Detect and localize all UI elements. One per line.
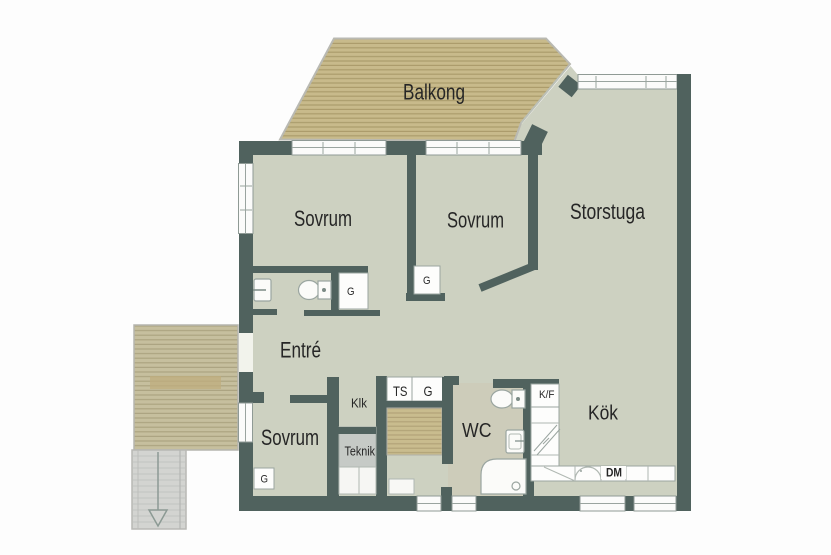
svg-text:G: G — [261, 474, 269, 486]
svg-text:G: G — [424, 383, 433, 399]
svg-text:TS: TS — [393, 383, 408, 399]
svg-text:Entré: Entré — [280, 338, 321, 363]
svg-text:Kök: Kök — [588, 402, 619, 425]
svg-text:WC: WC — [462, 420, 492, 442]
svg-text:Klk: Klk — [351, 396, 367, 411]
svg-text:Sovrum: Sovrum — [294, 206, 352, 231]
svg-text:Storstuga: Storstuga — [570, 199, 645, 224]
svg-text:Teknik: Teknik — [345, 445, 376, 459]
svg-text:G: G — [423, 275, 431, 287]
svg-text:Sovrum: Sovrum — [261, 425, 319, 450]
svg-text:K/F: K/F — [539, 389, 555, 401]
svg-text:DM: DM — [606, 468, 622, 480]
svg-text:Sovrum: Sovrum — [447, 208, 504, 233]
svg-text:Balkong: Balkong — [403, 80, 465, 105]
svg-text:G: G — [347, 286, 355, 298]
